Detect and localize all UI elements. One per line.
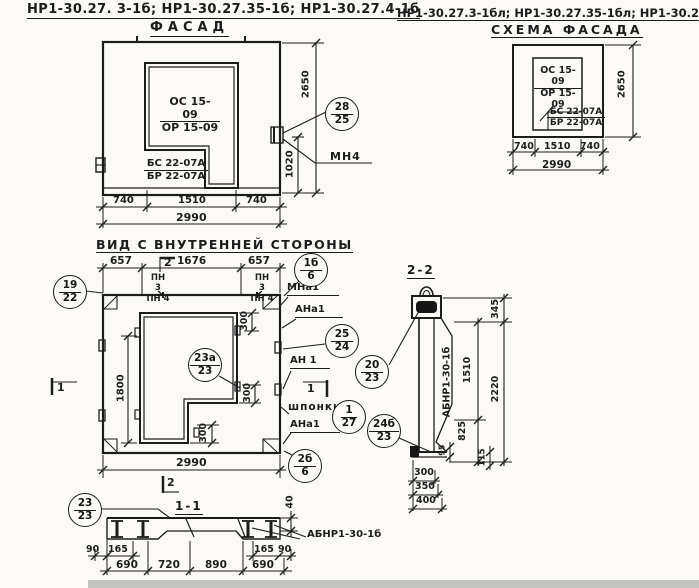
callout-bottom: 23 (365, 373, 380, 384)
dim-740-b: 740 (580, 142, 600, 152)
label-pn-left: ПН 3 ПН 4 (146, 274, 170, 304)
dim-300-c: 300 (199, 423, 209, 443)
callout-25-24: 25 24 (325, 324, 359, 358)
section-flag-2-bottom: 2 (167, 477, 175, 489)
callout-top: 19 (59, 280, 82, 292)
dim-40: 40 (286, 495, 296, 508)
callout-1b-6: 1б 6 (294, 253, 328, 287)
dim-300-a: 300 (240, 311, 250, 331)
dim-165-left: 165 (108, 545, 128, 555)
title-scheme: СХЕМА ФАСАДА (491, 23, 643, 38)
callout-bottom: 6 (307, 271, 314, 282)
callout-bottom: 24 (335, 342, 350, 353)
callout-23-23: 23 23 (68, 493, 102, 527)
title-series-right: НР1-30.27.3-1бл; НР1-30.27.35-1бл; НР1-3… (397, 7, 699, 21)
dim-825: 825 (458, 421, 468, 441)
callout-top: 24б (369, 419, 399, 431)
dim-2990-inner: 2990 (176, 457, 207, 469)
dim-720: 720 (158, 560, 180, 571)
dim-690-a: 690 (116, 560, 138, 571)
callout-top: 1б (300, 258, 323, 270)
title-series-left: НР1-30.27. 3-1б; НР1-30.27.35-1б; НР1-30… (27, 3, 420, 19)
dim-1800: 1800 (117, 374, 128, 402)
dim-300-s22: 300 (414, 468, 434, 478)
callout-bottom: 27 (342, 418, 357, 429)
callout-bottom: 22 (63, 293, 78, 304)
label-an1: АН 1 (290, 356, 330, 369)
mark-or: ОР 15-09 (160, 122, 220, 135)
dim-115: 115 (478, 449, 487, 467)
dim-2990-scheme: 2990 (542, 160, 571, 171)
callout-top: 25 (331, 329, 354, 341)
dim-657-a: 657 (110, 256, 132, 267)
dim-2990-facade: 2990 (176, 212, 207, 224)
label-pn-right: ПН 3 ПН 4 (250, 274, 274, 304)
callout-28-25: 28 25 (325, 97, 359, 131)
scan-edge-strip (88, 580, 699, 588)
dim-890: 890 (205, 560, 227, 571)
section-flag-2-top: 2 (164, 257, 172, 269)
mark-br: БР 22-07А (144, 171, 208, 183)
facade-linework (96, 36, 372, 228)
scheme-window-mark: ОС 15-09 ОР 15-09 (534, 66, 582, 111)
dim-300-b: 300 (243, 383, 253, 403)
title-section-2-2: 2-2 (407, 264, 435, 279)
mark-bs: БС 22-07А (547, 107, 605, 118)
callout-bottom: 23 (377, 432, 392, 443)
callout-19-22: 19 22 (53, 275, 87, 309)
dim-740-a: 740 (514, 142, 534, 152)
label-mn4: МН4 (330, 151, 361, 163)
label-pn3: ПН 3 (250, 274, 274, 295)
callout-24b-23: 24б 23 (367, 414, 401, 448)
mark-os: ОС 15-09 (160, 96, 220, 122)
dim-657-b: 657 (248, 256, 270, 267)
callout-1-27: 1 27 (332, 400, 366, 434)
dim-90-left: 90 (86, 545, 99, 555)
dim-690-b: 690 (252, 560, 274, 571)
drawing-linework (0, 0, 699, 588)
callout-bottom: 23 (78, 511, 93, 522)
title-inner-view: ВИД С ВНУТРЕННЕЙ СТОРОНЫ (96, 238, 353, 253)
section-flag-1-right: 1 (307, 383, 315, 395)
facade-block-mark: БС 22-07А БР 22-07А (144, 158, 208, 182)
dim-740-b: 740 (246, 196, 267, 207)
callout-top: 20 (361, 360, 384, 372)
callout-top: 1 (341, 405, 356, 417)
dim-345: 345 (491, 299, 501, 319)
callout-top: 23а (190, 353, 220, 365)
dim-165-right: 165 (254, 545, 274, 555)
dim-1510: 1510 (178, 196, 206, 207)
mark-br: БР 22-07А (547, 118, 605, 128)
dim-1676: 1676 (177, 256, 206, 267)
mark-bs: БС 22-07А (144, 158, 208, 171)
dim-1510: 1510 (544, 142, 570, 152)
dim-740-a: 740 (113, 196, 134, 207)
callout-top: 2б (294, 454, 317, 466)
dim-1510-s22: 1510 (463, 357, 473, 383)
dim-2650-scheme: 2650 (618, 70, 629, 98)
title-section-1-1: 1-1 (175, 500, 203, 515)
facade-window-mark: ОС 15-09 ОР 15-09 (160, 96, 220, 135)
callout-bottom: 6 (301, 467, 308, 478)
dim-350: 350 (415, 482, 435, 492)
title-facade: ФАСАД (150, 21, 229, 37)
label-pn4: ПН 4 (146, 295, 170, 305)
callout-2b-6: 2б 6 (288, 449, 322, 483)
dim-2220: 2220 (491, 376, 501, 402)
panel-mark-abnr: АБНР1-30-1б (442, 347, 452, 417)
label-ana1: АНа1 (295, 305, 343, 318)
dim-1020: 1020 (286, 150, 297, 178)
mark-os: ОС 15-09 (534, 66, 582, 89)
section-flag-1-left: 1 (57, 382, 65, 394)
dim-400: 400 (416, 496, 436, 506)
callout-23a-23: 23а 23 (188, 348, 222, 382)
callout-20-23: 20 23 (355, 355, 389, 389)
callout-bottom: 25 (335, 115, 350, 126)
scheme-block-mark: БС 22-07А БР 22-07А (547, 107, 605, 129)
callout-bottom: 23 (198, 366, 213, 377)
beam-mark-abnr: АБНР1-30-1б (307, 530, 381, 541)
callout-top: 28 (331, 102, 354, 114)
drawing-sheet: НР1-30.27. 3-1б; НР1-30.27.35-1б; НР1-30… (0, 0, 699, 588)
callout-top: 23 (74, 498, 97, 510)
label-pn4: ПН 4 (250, 295, 274, 305)
dim-90-right: 90 (278, 545, 291, 555)
dim-95: 95 (438, 445, 446, 456)
dim-2650-facade: 2650 (302, 70, 313, 98)
label-pn3: ПН 3 (146, 274, 170, 295)
